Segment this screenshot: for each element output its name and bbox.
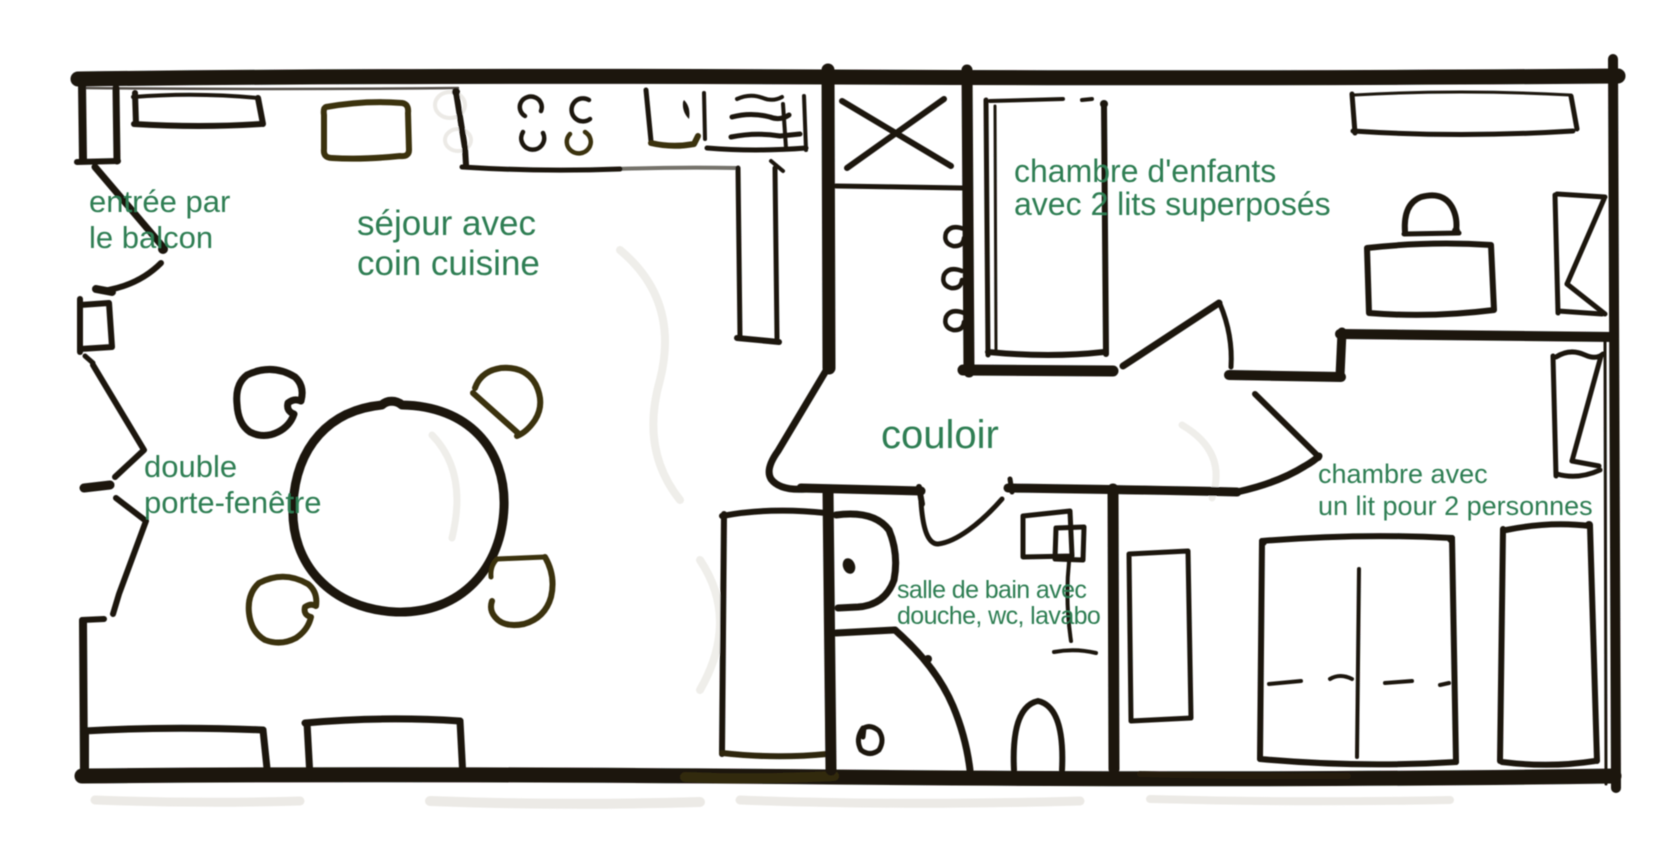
- svg-text:couloir: couloir: [881, 413, 999, 457]
- svg-text:porte-fenêtre: porte-fenêtre: [144, 485, 322, 520]
- svg-text:séjour avec: séjour avec: [357, 204, 536, 243]
- svg-text:entrée par: entrée par: [89, 184, 230, 219]
- svg-text:le balcon: le balcon: [89, 220, 213, 255]
- svg-text:chambre d'enfants: chambre d'enfants: [1014, 153, 1276, 189]
- svg-text:chambre avec: chambre avec: [1318, 459, 1488, 489]
- svg-text:un lit pour 2 personnes: un lit pour 2 personnes: [1318, 491, 1593, 521]
- svg-text:avec 2 lits superposés: avec 2 lits superposés: [1014, 186, 1331, 222]
- svg-text:salle de bain avec: salle de bain avec: [897, 576, 1086, 604]
- svg-text:coin cuisine: coin cuisine: [357, 244, 540, 283]
- svg-text:double: double: [144, 449, 237, 484]
- svg-text:douche, wc, lavabo: douche, wc, lavabo: [897, 602, 1100, 630]
